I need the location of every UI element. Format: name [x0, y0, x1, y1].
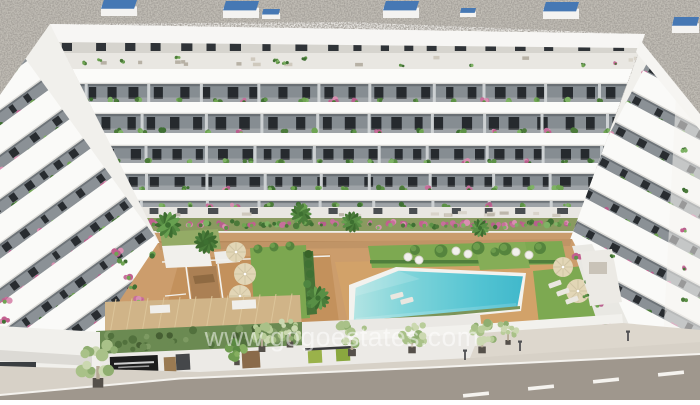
svg-text:www.gogoestates.com: www.gogoestates.com [204, 322, 480, 352]
